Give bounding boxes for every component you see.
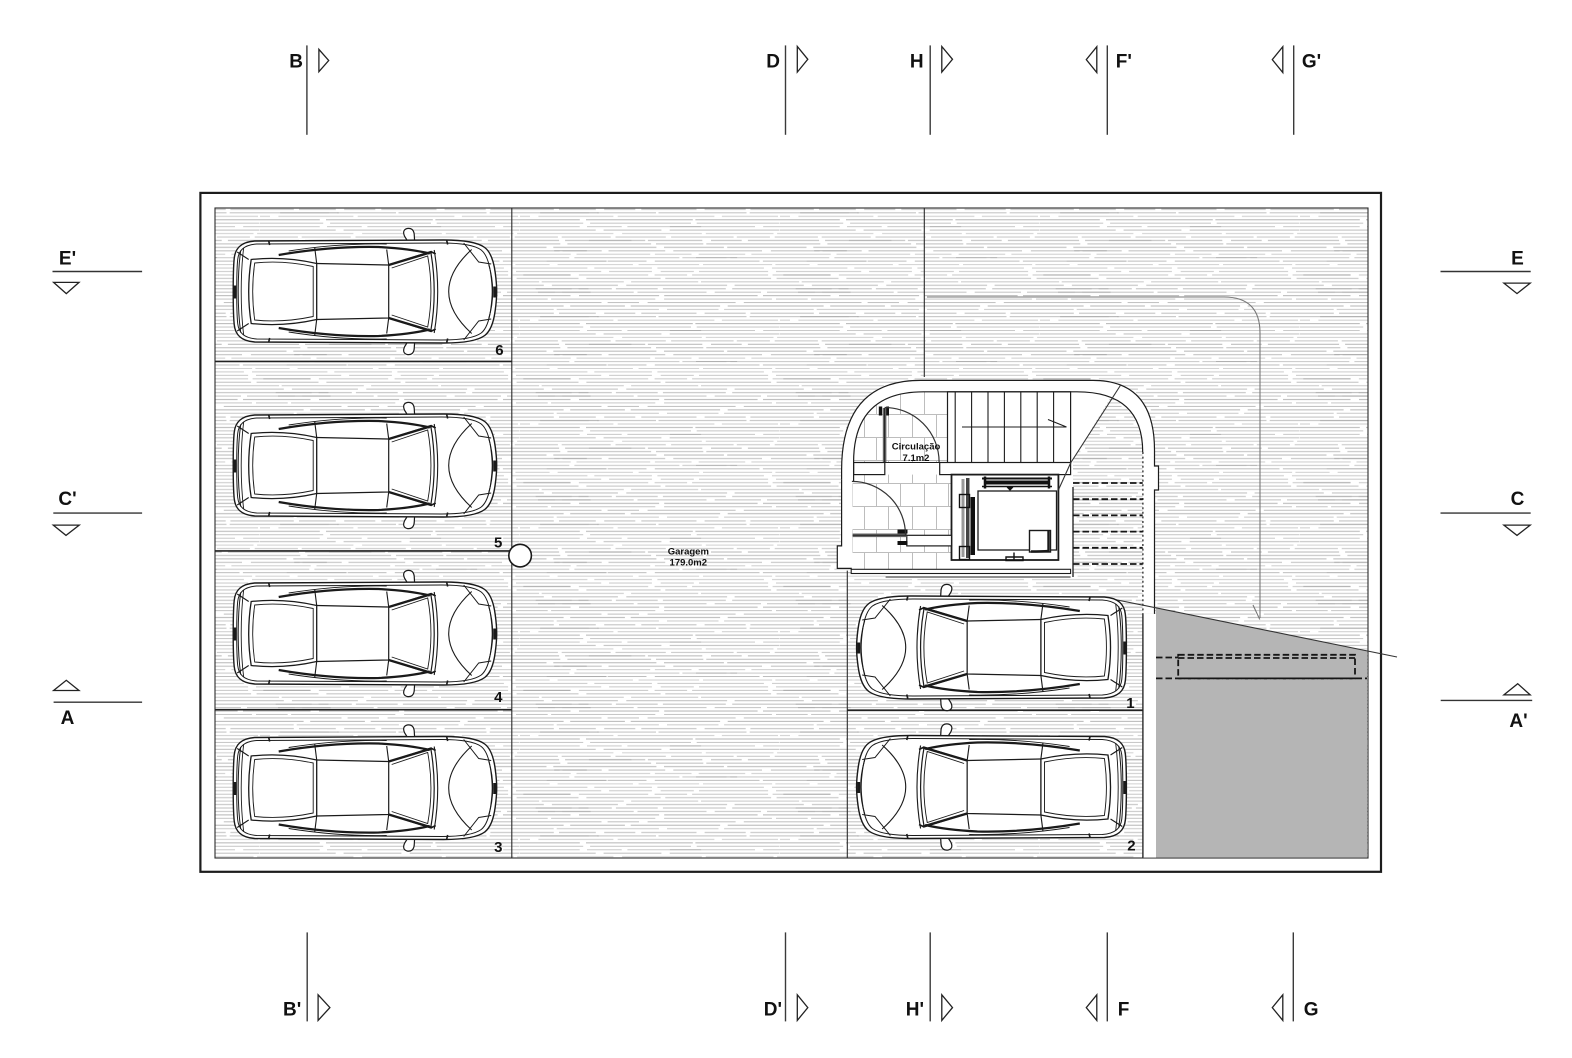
- svg-text:A: A: [61, 708, 75, 729]
- svg-text:2: 2: [1127, 837, 1135, 854]
- svg-text:1: 1: [1126, 695, 1134, 712]
- svg-text:6: 6: [495, 342, 503, 359]
- svg-text:Garagem: Garagem: [668, 547, 709, 558]
- svg-text:F': F': [1116, 52, 1132, 73]
- svg-text:4: 4: [494, 689, 503, 706]
- svg-text:E: E: [1511, 249, 1524, 270]
- svg-text:Circulação: Circulação: [892, 441, 941, 452]
- svg-text:5: 5: [494, 534, 502, 551]
- svg-text:D': D': [764, 1000, 782, 1021]
- svg-text:H: H: [910, 52, 924, 73]
- svg-text:C: C: [1511, 489, 1525, 510]
- svg-text:F: F: [1118, 1000, 1130, 1021]
- svg-text:D: D: [766, 52, 780, 73]
- svg-text:A': A': [1509, 711, 1527, 732]
- svg-text:179.0m2: 179.0m2: [670, 557, 708, 568]
- svg-text:B: B: [289, 52, 303, 73]
- svg-text:B': B': [283, 1000, 301, 1021]
- svg-text:7.1m2: 7.1m2: [903, 453, 930, 464]
- svg-text:H': H': [906, 1000, 924, 1021]
- svg-text:E': E': [59, 249, 76, 270]
- svg-text:C': C': [58, 489, 76, 510]
- svg-text:G: G: [1304, 1000, 1319, 1021]
- svg-text:3: 3: [494, 839, 502, 856]
- svg-text:G': G': [1302, 52, 1321, 73]
